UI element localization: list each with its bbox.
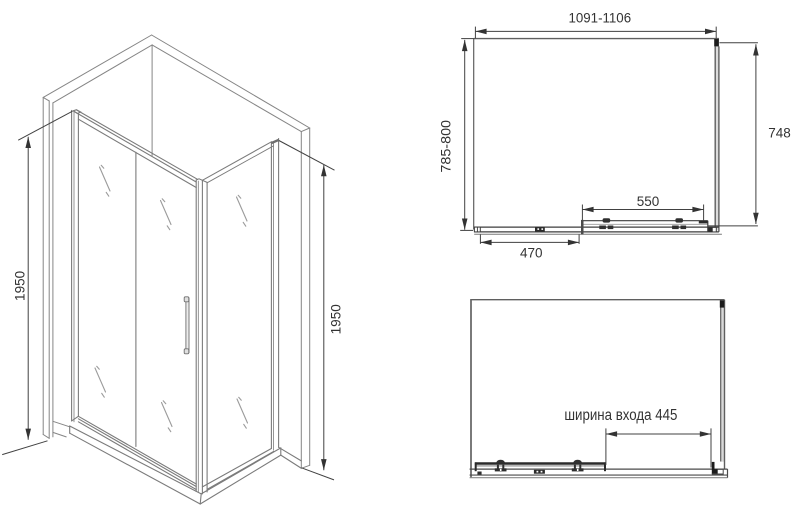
svg-text:470: 470 bbox=[520, 246, 543, 261]
svg-text:748: 748 bbox=[768, 125, 791, 140]
svg-text:785-800: 785-800 bbox=[439, 120, 454, 173]
svg-text:ширина входа 445: ширина входа 445 bbox=[564, 407, 677, 424]
svg-text:1950: 1950 bbox=[329, 304, 344, 334]
svg-text:550: 550 bbox=[637, 194, 660, 209]
svg-text:1950: 1950 bbox=[12, 271, 27, 301]
svg-text:1091-1106: 1091-1106 bbox=[569, 10, 632, 25]
